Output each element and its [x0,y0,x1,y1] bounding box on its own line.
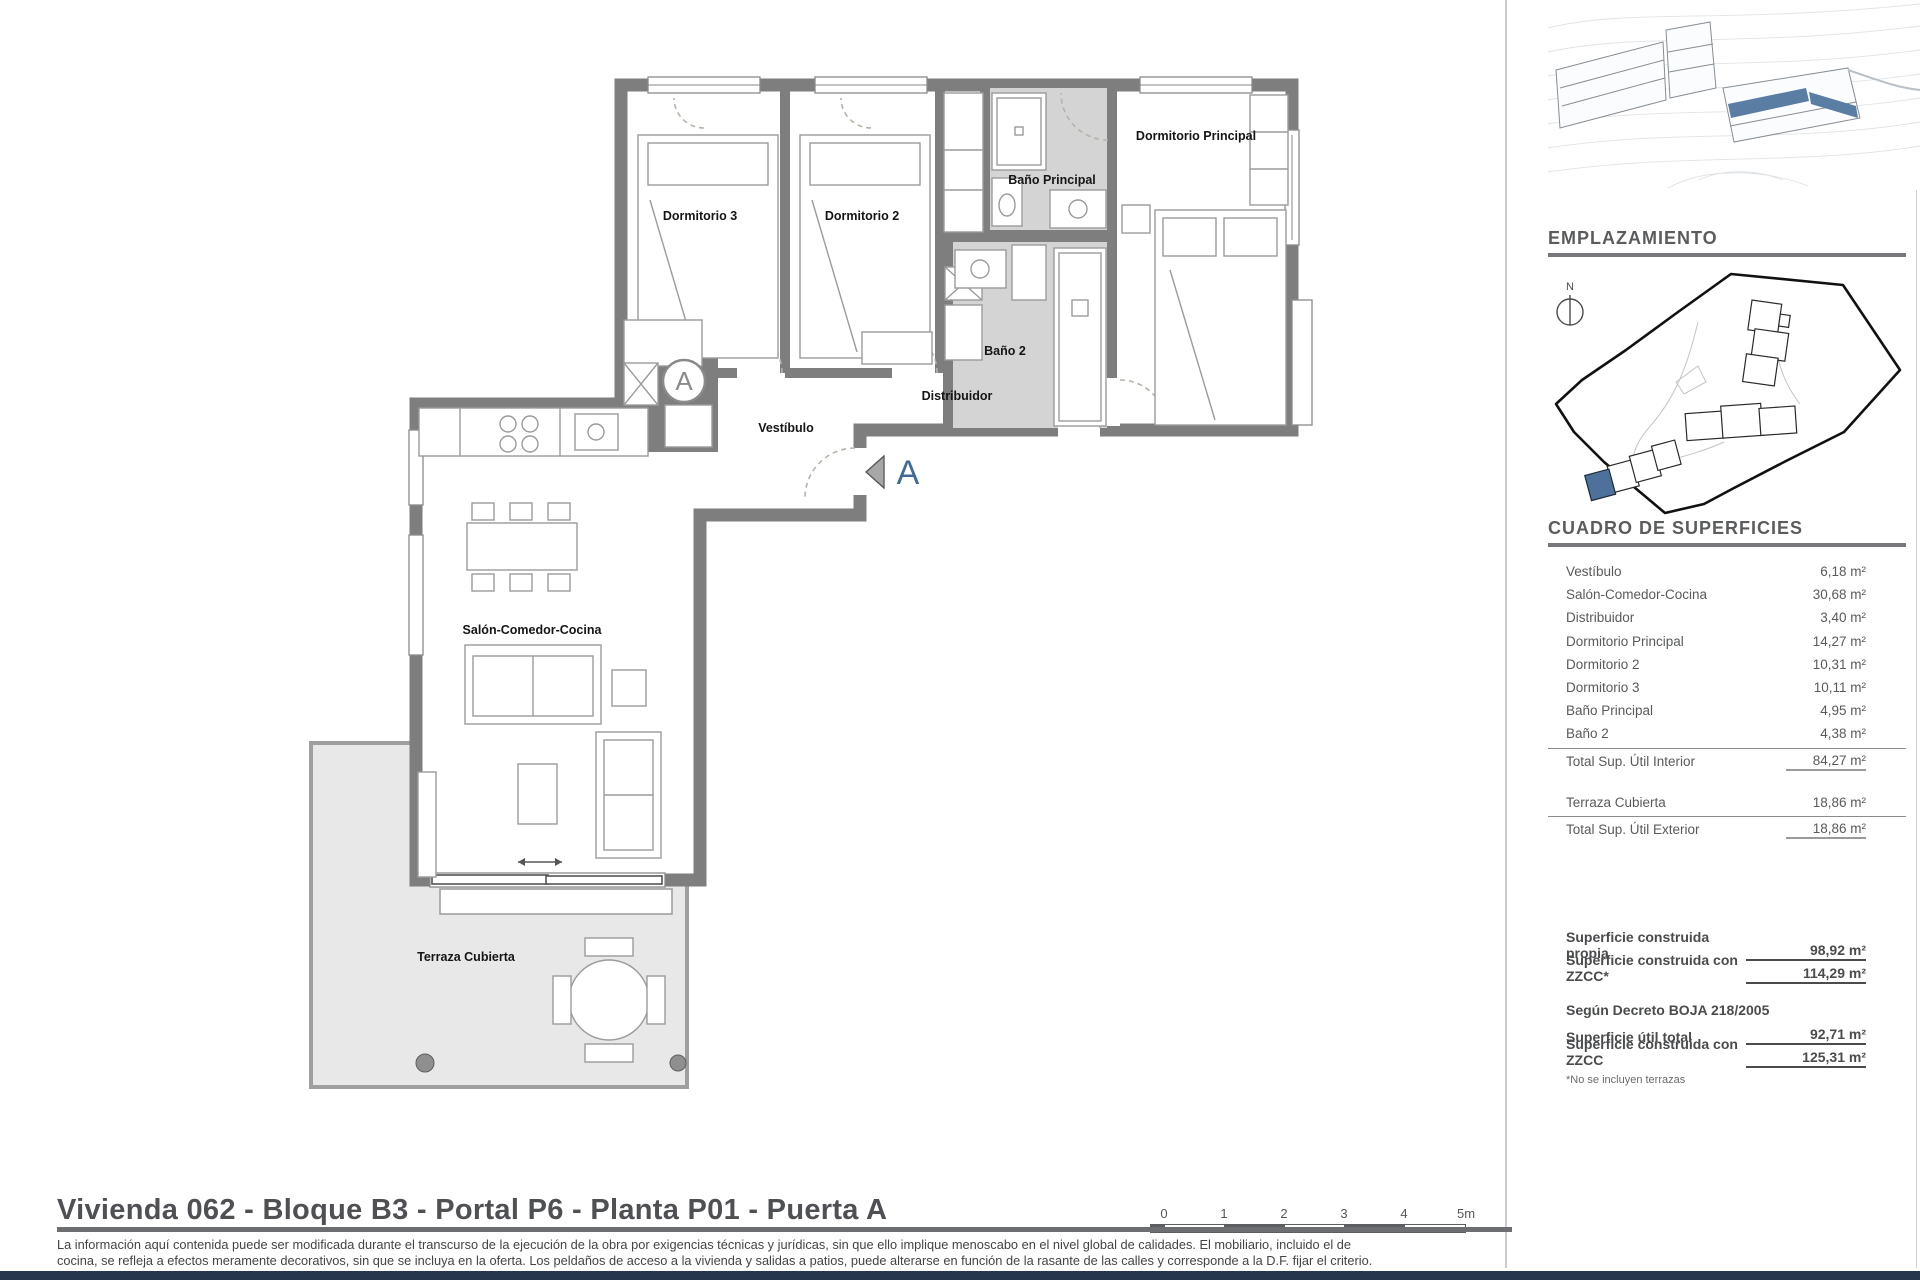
scale-tick: 3 [1340,1206,1347,1221]
total-exterior-row: Total Sup. Útil Exterior 18,86 m² [1548,816,1906,843]
disclaimer-line: cocina, se refleja a efectos meramente d… [57,1253,1517,1269]
row-value: 10,31 m² [1813,657,1866,672]
row-label: Dormitorio 2 [1566,657,1640,672]
row-value: 114,29 m² [1746,965,1866,984]
row-value: 18,86 m² [1786,821,1866,839]
row-value: 30,68 m² [1813,587,1866,602]
summary-row: Superficie construida con ZZCC 125,31 m² [1548,1045,1906,1068]
site-buildings [1605,300,1797,492]
scale-tick: 4 [1400,1206,1407,1221]
sidebar-divider [1505,0,1507,1268]
wardrobe-icon [944,93,983,360]
cabinet-icon [862,332,932,364]
emplazamiento-rule [1548,253,1906,257]
room-label-salon: Salón-Comedor-Cocina [463,623,603,637]
row-label: Dormitorio 3 [1566,680,1640,695]
dining-table-icon [467,503,577,591]
room-label-dormitorio-2: Dormitorio 2 [825,209,899,223]
row-label: Dormitorio Principal [1566,634,1684,649]
summary-block: Superficie construida propia 98,92 m² Su… [1548,938,1906,1086]
room-label-dormitorio-principal: Dormitorio Principal [1136,129,1256,143]
nightstand-icon [1122,205,1150,233]
scale-tick: 0 [1160,1206,1167,1221]
row-value: 14,27 m² [1813,634,1866,649]
room-label-bano-2: Baño 2 [984,344,1026,358]
bottom-accent-bar [0,1271,1920,1280]
table-row: Baño 2 4,38 m² [1548,722,1906,745]
table-row: Dormitorio Principal 14,27 m² [1548,630,1906,653]
side-table-icon [612,670,646,706]
entrance-door-marker: A [866,454,920,492]
table-row: Distribuidor 3,40 m² [1548,606,1906,629]
drain-icon [670,1055,686,1071]
row-label: Superficie construida con ZZCC* [1566,952,1746,984]
cuadro-rule [1548,543,1906,547]
north-label: N [1566,281,1574,293]
coffee-table-icon [518,764,557,824]
scale-tick: 2 [1280,1206,1287,1221]
room-label-distribuidor: Distribuidor [922,389,993,403]
disclaimer-line: La información aquí contenida puede ser … [57,1237,1517,1253]
terraces-footnote: *No se incluyen terrazas [1548,1068,1906,1086]
shaft-icon [624,363,658,405]
row-label: Salón-Comedor-Cocina [1566,587,1707,602]
washer-icon [1012,245,1046,300]
areas-table: Vestíbulo 6,18 m² Salón-Comedor-Cocina 3… [1548,560,1906,843]
row-value: 4,95 m² [1820,703,1866,718]
summary-row: Superficie construida con ZZCC* 114,29 m… [1548,961,1906,984]
bathtub-icon [1054,248,1106,426]
entrance-door-letter: A [897,454,920,492]
room-label-vestibulo: Vestíbulo [758,421,814,435]
room-label-terraza: Terraza Cubierta [417,950,516,964]
table-row: Terraza Cubierta 18,86 m² [1548,791,1906,814]
room-label-bano-principal: Baño Principal [1008,173,1096,187]
total-interior-row: Total Sup. Útil Interior 84,27 m² [1548,748,1906,775]
site-illustration [1548,0,1920,193]
shower-icon [992,93,1046,170]
row-label: Terraza Cubierta [1566,795,1666,810]
wardrobe-icon [1250,95,1288,205]
row-label: Total Sup. Útil Interior [1566,754,1695,769]
entrance-arrow-icon [866,456,884,488]
sink-icon [1050,190,1106,228]
cuadro-title: CUADRO DE SUPERFICIES [1548,518,1906,539]
tv-unit-icon [418,772,436,877]
cabinet-icon [624,320,702,366]
row-label: Baño 2 [1566,726,1609,741]
kitchen-counter-icon [419,408,648,456]
row-label: Superficie construida con ZZCC [1566,1036,1746,1068]
title-rule [57,1227,1512,1232]
north-icon: N [1557,281,1583,325]
scale-tick: 1 [1220,1206,1227,1221]
table-row: Dormitorio 2 10,31 m² [1548,653,1906,676]
row-label: Total Sup. Útil Exterior [1566,822,1700,837]
row-value: 92,71 m² [1746,1026,1866,1045]
double-bed-icon [1155,210,1286,425]
page-title: Vivienda 062 - Bloque B3 - Portal P6 - P… [57,1194,1157,1227]
scale-tick: 5m [1457,1206,1475,1221]
decreto-heading: Según Decreto BOJA 218/2005 [1548,1002,1906,1022]
washer-icon [665,405,712,447]
floorplan-sheet: { "colors":{"accent_blue":"#4d719a","wal… [0,0,1920,1280]
row-value: 3,40 m² [1820,610,1866,625]
page-right-border [1916,190,1917,1268]
drain-icon [416,1054,434,1072]
row-value: 98,92 m² [1746,942,1866,961]
table-row: Baño Principal 4,95 m² [1548,699,1906,722]
row-label: Vestíbulo [1566,564,1622,579]
table-row: Dormitorio 3 10,11 m² [1548,676,1906,699]
row-value: 4,38 m² [1820,726,1866,741]
table-row: Salón-Comedor-Cocina 30,68 m² [1548,583,1906,606]
row-label: Baño Principal [1566,703,1653,718]
floor-plan: A A Dormitorio 3 Dormitorio 2 Baño Princ… [0,0,1505,1190]
section-marker-letter: A [675,366,693,396]
building-sketch [1556,22,1860,142]
table-row: Vestíbulo 6,18 m² [1548,560,1906,583]
section-marker: A [663,360,705,402]
row-label: Distribuidor [1566,610,1634,625]
row-value: 6,18 m² [1820,564,1866,579]
emplazamiento-title: EMPLAZAMIENTO [1548,228,1906,249]
bed-icon [800,135,930,358]
row-value: 18,86 m² [1813,795,1866,810]
row-value: 84,27 m² [1786,753,1866,771]
disclaimer: La información aquí contenida puede ser … [57,1237,1517,1268]
sink-icon [955,250,1006,288]
row-value: 10,11 m² [1814,680,1866,695]
row-value: 125,31 m² [1746,1049,1866,1068]
room-label-dormitorio-3: Dormitorio 3 [663,209,737,223]
site-map: N [1548,264,1906,516]
